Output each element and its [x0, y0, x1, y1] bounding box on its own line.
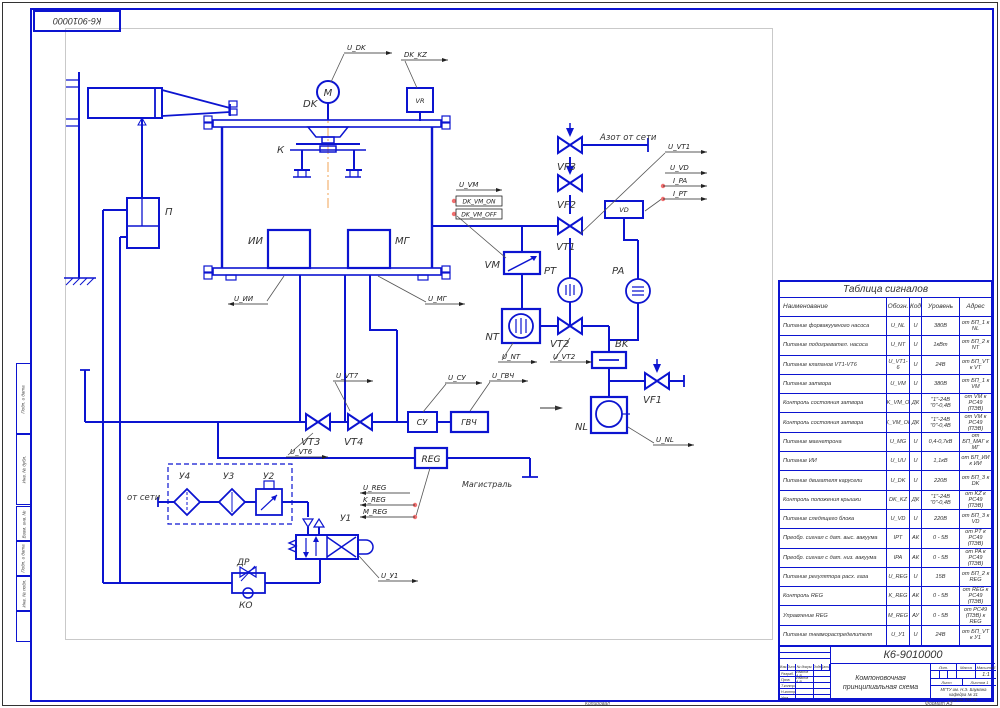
- sig-u-gvch: U_ГВЧ: [492, 372, 514, 380]
- su-text: СУ: [417, 418, 429, 427]
- table-cell: Питание регулятора расх. газа: [780, 568, 887, 587]
- vacuum-components: [408, 201, 650, 468]
- column-header: Обозн.: [887, 298, 910, 317]
- table-cell: от VM к РС49 (ПЭВ): [960, 413, 991, 432]
- valve-vt1: [558, 218, 582, 234]
- table-cell: U: [910, 452, 922, 471]
- sheets-value: 1: [986, 680, 988, 685]
- table-cell: U: [910, 568, 922, 587]
- sig-i-pt: I_PT: [673, 190, 688, 198]
- ann-azot: Азот от сети: [599, 133, 657, 143]
- sig-m-reg: M_REG: [363, 508, 388, 516]
- organization: МГТУ им. Н.Э. Баумана кафедра № 31 групп…: [931, 686, 996, 702]
- ii-label: ИИ: [248, 236, 263, 247]
- table-cell: от БП_2 к NT: [960, 336, 991, 355]
- table-row: Питание форвакуумного насосаU_NLU380Вот …: [780, 317, 991, 336]
- table-cell: 0,4-0,7кВ: [922, 433, 960, 452]
- motor-letter: M: [324, 88, 333, 99]
- table-cell: от PA к РС49 (ПЭВ): [960, 549, 991, 568]
- table-cell: DK_VM_OFF: [887, 413, 910, 432]
- table-cell: от РС49 (ПЭВ) к REG: [960, 606, 991, 625]
- vt2-label: VT2: [550, 339, 569, 350]
- table-cell: от БП_3 к VD: [960, 510, 991, 529]
- table-cell: от БП_VT к У1: [960, 626, 991, 645]
- table-cell: U: [910, 336, 922, 355]
- footer-copy: Копировал: [585, 701, 610, 707]
- lit-mass-scale: Лит. Масса Масштаб 1:1 Лист Листов 1 МГТ…: [930, 664, 995, 702]
- table-row: Питание следящего блокаU_VDU220Вот БП_3 …: [780, 510, 991, 529]
- valve-vf3: [558, 123, 582, 153]
- vt1-label: VT1: [556, 242, 575, 253]
- table-cell: DK_VM_ON: [887, 394, 910, 413]
- vm-label: VM: [485, 260, 501, 271]
- table-cell: "1"-24В "0"-0,4В: [922, 491, 960, 510]
- table-row: Преобр. сигнал с дат. низ. вакуумаIPAАК0…: [780, 549, 991, 568]
- table-row: Питание клапанов VT1-VT6U_VT1-6U24Вот БП…: [780, 356, 991, 375]
- table-row: Питание регулятора расх. газаU_REGU15Вот…: [780, 568, 991, 587]
- mg-label: МГ: [395, 236, 411, 247]
- table-cell: от PT к РС49 (ПЭВ): [960, 529, 991, 548]
- sig-name: Иванов А.В.: [796, 677, 814, 682]
- table-cell: Питание магнетрона: [780, 433, 887, 452]
- table-cell: 24В: [922, 356, 960, 375]
- column-header: Наименование: [780, 298, 887, 317]
- table-cell: K_REG: [887, 587, 910, 606]
- table-cell: U: [910, 317, 922, 336]
- table-cell: Контроль REG: [780, 587, 887, 606]
- valve-vf1: [645, 359, 669, 389]
- sig-u-vd: U_VD: [670, 164, 689, 172]
- sig-col-header: Подп.: [814, 664, 822, 670]
- sig-col-header: № докум.: [796, 664, 814, 670]
- table-cell: АК: [910, 529, 922, 548]
- reg-text: REG: [422, 455, 441, 465]
- junction-dots: [413, 184, 665, 519]
- table-cell: "1"-24В "0"-0,4В: [922, 394, 960, 413]
- sig-u-vt2: U_VT2: [553, 353, 576, 361]
- table-cell: 0 - 5В: [922, 606, 960, 625]
- lit-label: Лит.: [931, 664, 957, 671]
- vt4-label: VT4: [344, 437, 363, 448]
- table-cell: U: [910, 510, 922, 529]
- sig-role: Утв.: [780, 695, 796, 700]
- table-cell: M_REG: [887, 606, 910, 625]
- sig-role: Н.контр.: [780, 689, 796, 694]
- column-header: Код: [910, 298, 922, 317]
- sig-role: Т.контр.: [780, 683, 796, 688]
- sheet-label: Лист: [941, 680, 951, 685]
- table-cell: 380В: [922, 317, 960, 336]
- ground-hatch: [66, 278, 94, 285]
- nl-label: NL: [575, 422, 588, 433]
- title-block: К6-9010000 Изм.Лист№ докум.Подп.ДатаРазр…: [778, 645, 993, 700]
- footer-format: Формат А3: [925, 701, 952, 707]
- table-cell: U_REG: [887, 568, 910, 587]
- signature-rows: Изм.Лист№ докум.Подп.ДатаРазраб.Иванов А…: [780, 664, 830, 702]
- y1-label: У1: [340, 514, 351, 524]
- table-cell: 1,1кВ: [922, 452, 960, 471]
- sheets-label: Листов: [971, 680, 986, 685]
- sig-name: [796, 695, 814, 700]
- table-cell: Питание ИИ: [780, 452, 887, 471]
- vf3-label: VF3: [557, 162, 576, 173]
- signal-table-header: НаименованиеОбозн.КодУровеньАдрес: [780, 298, 991, 317]
- solenoid: [358, 540, 373, 554]
- ann-ot-seti: от сети: [127, 493, 161, 503]
- sig-u-nt: U_NT: [502, 353, 521, 361]
- column-header: Адрес: [960, 298, 991, 317]
- vf2-label: VF2: [557, 200, 576, 211]
- scale-value: 1:1: [976, 671, 996, 679]
- table-cell: от БП_МАГ к МГ: [960, 433, 991, 452]
- exhaust-symbols: [303, 519, 324, 527]
- table-cell: Питание затвора: [780, 375, 887, 394]
- table-cell: Контроль состояния затвора: [780, 413, 887, 432]
- table-cell: 0 - 5В: [922, 549, 960, 568]
- table-cell: "1"-24В "0"-0,4В: [922, 413, 960, 432]
- table-row: Управление REGM_REGАУ0 - 5Вот РС49 (ПЭВ)…: [780, 606, 991, 625]
- table-cell: от БП_3 к DK: [960, 471, 991, 490]
- gvch-text: ГВЧ: [461, 418, 477, 427]
- pa-label: PA: [612, 266, 625, 277]
- table-cell: 15В: [922, 568, 960, 587]
- table-cell: DK_KZ: [887, 491, 910, 510]
- table-cell: Питание клапанов VT1-VT6: [780, 356, 887, 375]
- sig-u-vm: U_VM: [459, 181, 478, 189]
- sig-role: Пров.: [780, 677, 796, 682]
- table-cell: U: [910, 375, 922, 394]
- table-cell: Преобр. сигнал с дат. выс. вакуума: [780, 529, 887, 548]
- sig-col-header: Изм.: [780, 664, 788, 670]
- chamber-door: [64, 72, 237, 285]
- table-cell: 380В: [922, 375, 960, 394]
- sig-u-vt7: U_VT7: [336, 372, 359, 380]
- table-cell: U: [910, 356, 922, 375]
- table-cell: IPT: [887, 529, 910, 548]
- sig-name: [796, 683, 814, 688]
- table-cell: ДК: [910, 394, 922, 413]
- table-cell: U: [910, 433, 922, 452]
- table-cell: от REG к РС49 (ПЭВ): [960, 587, 991, 606]
- y2-label: У2: [263, 472, 274, 482]
- vt3-label: VT3: [301, 437, 320, 448]
- table-cell: ДК: [910, 413, 922, 432]
- sig-u-nl: U_NL: [656, 436, 674, 444]
- table-cell: U_VD: [887, 510, 910, 529]
- doc-title-line2: принципиальная схема: [843, 683, 918, 692]
- sig-dk-vm-on: DK_VM_ON: [462, 199, 496, 206]
- drawing-sheet: К6-9010000 Подп. и датаИнв. № дубл.Взам.…: [0, 0, 1000, 708]
- table-row: Питание пневмораспределителяU_У1U24Вот Б…: [780, 626, 991, 645]
- table-cell: U_DK: [887, 471, 910, 490]
- table-cell: от БП_1 к NL: [960, 317, 991, 336]
- sig-u-y1: U_У1: [381, 572, 398, 580]
- table-cell: Преобр. сигнал с дат. низ. вакуума: [780, 549, 887, 568]
- ko-label: КО: [239, 601, 252, 611]
- title-block-number: К6-9010000: [830, 647, 995, 664]
- signal-table-title: Таблица сигналов: [780, 282, 991, 298]
- magnetron-mg: [348, 230, 390, 268]
- table-cell: Контроль положения крышки: [780, 491, 887, 510]
- table-cell: АК: [910, 549, 922, 568]
- sig-i-pa: I_PA: [673, 177, 687, 185]
- table-row: Питание двигателя каруселиU_DKU220Вот БП…: [780, 471, 991, 490]
- table-cell: от БП_2 к REG: [960, 568, 991, 587]
- table-cell: Питание подогревател. насоса: [780, 336, 887, 355]
- vr-text: VR: [416, 97, 425, 105]
- schematic-labels: DKMКИИМГПVMVF3VF2VT1PTPANTVT2BKVF1NLVT3V…: [127, 44, 707, 611]
- table-cell: от БП_VT к VT: [960, 356, 991, 375]
- vf1-label: VF1: [643, 395, 662, 406]
- org-line-3: группа ТМ-72: [950, 697, 977, 702]
- p-label: П: [165, 207, 173, 218]
- table-cell: 1кВт: [922, 336, 960, 355]
- sig-u-mg: U_МГ: [428, 295, 448, 303]
- valve-vt4: [348, 414, 372, 430]
- sig-u-vt1: U_VT1: [668, 143, 690, 151]
- table-row: Контроль положения крышкиDK_KZДК"1"-24В …: [780, 491, 991, 510]
- spring: [289, 540, 296, 552]
- table-cell: U_NL: [887, 317, 910, 336]
- table-cell: Питание форвакуумного насоса: [780, 317, 887, 336]
- table-cell: АК: [910, 587, 922, 606]
- table-row: Питание магнетронаU_MGU0,4-0,7кВот БП_МА…: [780, 433, 991, 452]
- sig-row: Утв.: [780, 695, 830, 701]
- y4-label: У4: [179, 472, 190, 482]
- sig-u-dk: U_DK: [347, 44, 367, 52]
- ann-magistral: Магистраль: [462, 480, 512, 489]
- sig-dk-kz: DK_KZ: [404, 51, 427, 59]
- sig-u-reg: U_REG: [363, 484, 387, 492]
- table-cell: от KZ к РС49 (ПЭВ): [960, 491, 991, 510]
- sig-name: [796, 689, 814, 694]
- y3-label: У3: [223, 472, 234, 482]
- bk-label: BK: [615, 339, 630, 350]
- table-cell: IPA: [887, 549, 910, 568]
- table-row: Контроль REGK_REGАК0 - 5Вот REG к РС49 (…: [780, 587, 991, 606]
- sig-u-su: U_СУ: [448, 374, 467, 382]
- sig-u-ii: U_ИИ: [234, 295, 254, 303]
- sig-role: Разраб.: [780, 671, 796, 676]
- throttle-dr: [232, 573, 265, 593]
- table-cell: от БП_1 к VM: [960, 375, 991, 394]
- signal-table: Таблица сигналов НаименованиеОбозн.КодУр…: [778, 280, 993, 647]
- sig-col-header: Дата: [822, 664, 830, 670]
- table-row: Контроль состояния затвораDK_VM_OFFДК"1"…: [780, 413, 991, 432]
- table-cell: 0 - 5В: [922, 529, 960, 548]
- table-cell: АУ: [910, 606, 922, 625]
- vd-text: VD: [619, 206, 628, 214]
- table-cell: U_У1: [887, 626, 910, 645]
- table-cell: U: [910, 626, 922, 645]
- doc-title-line1: Компоновочная: [855, 674, 906, 683]
- scale-label: Масштаб: [976, 664, 996, 671]
- dr-label: ДР: [236, 558, 250, 568]
- table-cell: U_NT: [887, 336, 910, 355]
- table-cell: Контроль состояния затвора: [780, 394, 887, 413]
- table-row: Преобр. сигнал с дат. выс. вакуумаIPTАК0…: [780, 529, 991, 548]
- pneumatic-group: [168, 464, 373, 598]
- sig-k-reg: K_REG: [363, 496, 386, 504]
- sig-col-header: Лист: [788, 664, 796, 670]
- table-cell: 220В: [922, 471, 960, 490]
- table-cell: от БП_ИИ к ИИ: [960, 452, 991, 471]
- table-row: Питание затвораU_VMU380Вот БП_1 к VM: [780, 375, 991, 394]
- sig-dk-vm-off: DK_VM_OFF: [461, 212, 497, 219]
- pneumatic-cylinder-p: [127, 198, 159, 248]
- ion-source-ii: [268, 230, 310, 268]
- nt-label: NT: [485, 332, 499, 343]
- mass-label: Масса: [957, 664, 976, 671]
- table-cell: ДК: [910, 491, 922, 510]
- sig-u-vt6: U_VT6: [290, 448, 313, 456]
- table-cell: U_VT1-6: [887, 356, 910, 375]
- table-cell: U_UU: [887, 452, 910, 471]
- table-row: Контроль состояния затвораDK_VM_ONДК"1"-…: [780, 394, 991, 413]
- table-cell: Управление REG: [780, 606, 887, 625]
- signal-table-rows: Питание форвакуумного насосаU_NLU380Вот …: [780, 317, 991, 645]
- table-cell: 0 - 5В: [922, 587, 960, 606]
- dk-label: DK: [303, 99, 319, 110]
- k-label: К: [277, 145, 285, 156]
- column-header: Уровень: [922, 298, 960, 317]
- table-cell: Питание двигателя карусели: [780, 471, 887, 490]
- valve-vt3: [306, 414, 330, 430]
- table-cell: U_MG: [887, 433, 910, 452]
- table-cell: Питание следящего блока: [780, 510, 887, 529]
- table-cell: U: [910, 471, 922, 490]
- table-cell: U_VM: [887, 375, 910, 394]
- sig-name: Иванов А.В.: [796, 671, 814, 676]
- table-cell: от VM к РС49 (ПЭВ): [960, 394, 991, 413]
- table-cell: 24В: [922, 626, 960, 645]
- table-row: Питание подогревател. насосаU_NTU1кВтот …: [780, 336, 991, 355]
- table-row: Питание ИИU_UUU1,1кВот БП_ИИ к ИИ: [780, 452, 991, 471]
- table-cell: Питание пневмораспределителя: [780, 626, 887, 645]
- table-cell: 220В: [922, 510, 960, 529]
- pt-label: PT: [544, 266, 557, 277]
